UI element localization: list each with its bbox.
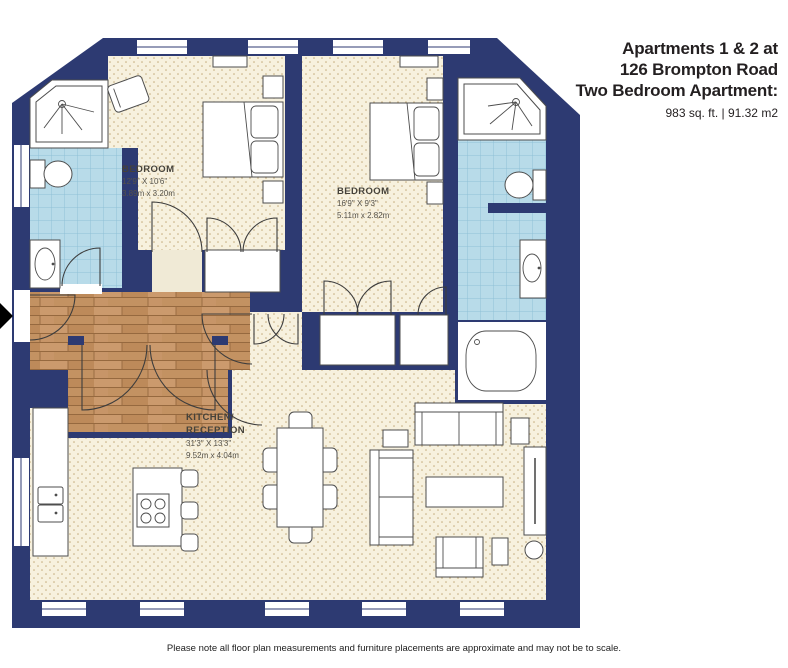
shower1-icon [36,86,102,142]
bedroom1-imperial: 12'9" X 10'6" [122,177,167,186]
bedroom2-closet-right [400,315,448,365]
floorplan-page: BEDROOM 12'9" X 10'6" 3.89m x 3.20m BEDR… [0,0,788,668]
bedroom1-metric: 3.89m x 3.20m [122,189,175,198]
bedroom1-nightstand-top [263,76,283,98]
area-text: 983 sq. ft. | 91.32 m2 [576,106,778,121]
sink1-icon [30,240,60,288]
tv-console [524,447,546,535]
entrance-arrow-icon [0,303,13,329]
bedroom2-label: BEDROOM [337,186,389,197]
bedroom2-metric: 5.11m x 2.82m [337,211,390,220]
bedroom2-bed [370,103,443,180]
hob-icon [137,494,169,527]
bedroom1-wardrobe [205,250,280,292]
coffee-table [426,477,503,507]
vestibule-floor [250,312,302,370]
entrance-door-gap [14,290,30,342]
bedroom2-nightstand-bottom [427,182,443,204]
title-line-1: Apartments 1 & 2 at [576,38,778,59]
bedroom2-imperial: 16'9" X 9'3" [337,199,378,208]
bedroom2-nightstand-top [427,78,443,100]
bedroom2-shelf [400,56,438,67]
bedroom1-label: BEDROOM [122,164,174,175]
side-table-armchair [492,538,508,565]
sofa-two-seater [415,403,503,445]
bathtub-icon [458,322,546,400]
side-table-left [383,430,408,447]
bedroom1-shelf [213,56,247,67]
bedroom1-bed [203,102,283,177]
side-table-right [511,418,529,444]
kitchen-label-1: KITCHEN/ [186,412,234,423]
sink2-icon [520,240,546,298]
title-line-3: Two Bedroom Apartment: [576,80,778,101]
armchair [436,537,483,577]
title-line-2: 126 Brompton Road [576,59,778,80]
sofa-vertical [370,450,413,545]
title-block: Apartments 1 & 2 at 126 Brompton Road Tw… [576,38,778,121]
footer-note: Please note all floor plan measurements … [0,643,788,654]
bar-stools [181,470,198,551]
toilet2-icon [505,170,546,200]
dining-table [277,428,323,527]
kitchen-counter [33,408,68,556]
kitchen-imperial: 31'3" X 13'3" [186,439,231,448]
kitchen-sink-icon [38,487,63,522]
bedroom2-closet-left [320,315,395,365]
bedroom1-nightstand-bottom [263,181,283,203]
kitchen-label-2: RECEPTION [186,425,245,436]
kitchen-metric: 9.52m x 4.04m [186,451,239,460]
floor-lamp-icon [525,541,543,559]
bedroom2-floor [302,56,443,312]
toilet1-icon [30,160,72,188]
